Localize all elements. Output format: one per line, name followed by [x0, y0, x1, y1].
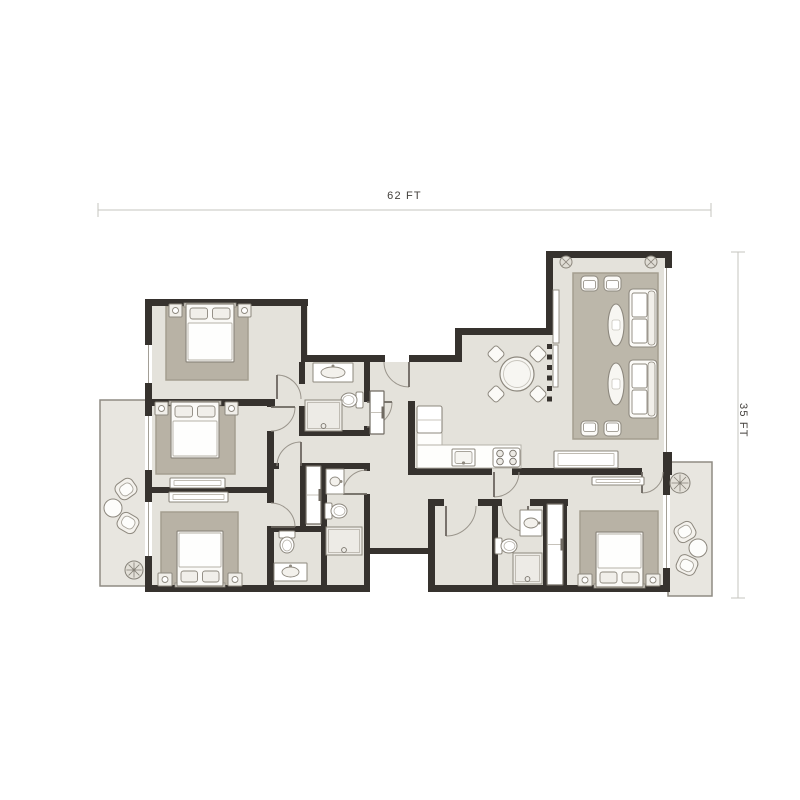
wardrobe-corridor: [370, 391, 384, 434]
tap: [340, 480, 343, 483]
sofa-cushion: [632, 364, 647, 388]
wardrobe-handle: [561, 539, 563, 551]
burner: [497, 450, 504, 457]
blanket: [598, 534, 641, 568]
shower-bath-north: [305, 400, 342, 431]
partition-dash: [547, 376, 552, 381]
bed-bedroom-4: [594, 532, 645, 588]
dresser-bedroom-3: [169, 492, 228, 502]
wall: [145, 383, 152, 407]
sink-tap: [462, 461, 465, 464]
wall: [267, 527, 274, 592]
wall: [145, 299, 152, 345]
partition-dash: [547, 397, 552, 402]
toilet-bath-south: [495, 538, 517, 554]
wall: [301, 355, 385, 362]
tap: [289, 565, 292, 568]
shower-tray: [513, 553, 542, 584]
dimension-line-top: [98, 203, 711, 217]
wall: [546, 251, 553, 335]
wall-shelf: [553, 345, 558, 387]
balcony-table: [104, 499, 122, 517]
partition-dash: [547, 365, 552, 370]
wall: [145, 556, 152, 592]
sofa-2: [629, 360, 657, 418]
wall: [409, 355, 462, 362]
dresser-top: [592, 477, 644, 485]
sofa-cushion: [632, 319, 647, 343]
toilet-bath-maid: [279, 531, 295, 553]
shower-bath-mid: [326, 527, 362, 555]
burner: [510, 458, 517, 465]
lamp: [650, 577, 656, 583]
armchair: [604, 276, 621, 291]
shower-tray: [326, 527, 362, 555]
pillow: [622, 572, 639, 583]
armchair: [581, 421, 598, 436]
lamp: [232, 577, 238, 583]
tap: [332, 365, 335, 368]
balcony-table: [689, 539, 707, 557]
sofa-cushion: [632, 293, 647, 317]
ceiling-light: [560, 256, 572, 268]
armchair-seat: [607, 281, 619, 290]
shower-tray: [305, 400, 342, 431]
partition-dash: [547, 386, 552, 391]
sideboard-living: [554, 451, 618, 468]
tv-console: [553, 290, 559, 343]
pillow: [181, 571, 198, 582]
wall: [663, 568, 670, 592]
lamp: [173, 308, 179, 314]
wall: [408, 468, 492, 475]
vanity-bath-south: [520, 510, 542, 536]
lamp: [242, 308, 248, 314]
armchair-seat: [607, 423, 619, 432]
wall: [663, 475, 670, 495]
wall: [455, 328, 462, 362]
wall: [663, 452, 672, 475]
wall: [300, 463, 306, 526]
armchair: [581, 276, 598, 291]
pillow: [213, 308, 231, 319]
pillow: [203, 571, 220, 582]
nightstand: [169, 304, 182, 317]
ceiling-light: [645, 256, 657, 268]
plant: [125, 561, 143, 579]
nightstand: [225, 402, 238, 415]
basin: [321, 367, 345, 378]
basin: [330, 477, 340, 486]
nightstand: [158, 573, 172, 586]
coffee-table-tray: [612, 320, 620, 330]
fridge-body: [417, 406, 442, 433]
wall: [299, 406, 305, 436]
basin: [524, 518, 538, 528]
coffee-table: [608, 363, 624, 405]
cooktop: [493, 448, 520, 467]
armchair-seat: [584, 281, 596, 290]
wardrobe-handle: [382, 407, 384, 419]
dresser-bedroom-2: [170, 478, 225, 488]
console-bedroom-4: [592, 477, 644, 485]
wall: [145, 406, 152, 416]
blanket: [188, 323, 232, 360]
wall: [364, 494, 370, 590]
nightstand: [646, 574, 660, 586]
dining-table: [500, 357, 534, 391]
nightstand: [228, 573, 242, 586]
wall: [478, 499, 502, 506]
nightstand: [578, 574, 592, 586]
wall: [267, 431, 274, 487]
lamp: [582, 577, 588, 583]
pillow: [198, 406, 216, 417]
partition-dash: [547, 355, 552, 360]
wall: [299, 362, 305, 384]
blanket: [179, 533, 221, 567]
kitchen-sink: [452, 449, 475, 466]
floor-plan-svg: [0, 0, 800, 800]
coffee-table: [608, 304, 624, 346]
bed-bedroom-3: [175, 531, 225, 587]
sofa-1: [629, 289, 657, 347]
shower-bath-south: [513, 553, 542, 584]
wall: [368, 548, 435, 554]
plant-center: [679, 482, 682, 485]
wall: [455, 328, 553, 335]
wall: [267, 487, 274, 503]
burner: [510, 450, 517, 457]
floor-plan-canvas: 62 FT 35 FT: [0, 0, 800, 800]
wall: [665, 251, 672, 268]
pillow: [600, 572, 617, 583]
toilet-bath-mid: [325, 503, 347, 519]
burner: [497, 458, 504, 465]
refrigerator: [417, 406, 442, 433]
floor-bath-south: [308, 554, 368, 586]
bed-bedroom-2: [169, 401, 221, 458]
pillow: [190, 308, 208, 319]
bed-bedroom-1: [184, 303, 236, 362]
lamp: [229, 406, 235, 412]
vanity-bath-north: [313, 363, 353, 382]
tap: [538, 522, 541, 525]
basin: [282, 567, 299, 577]
armchair: [604, 421, 621, 436]
sofa-back: [648, 362, 655, 416]
dining-table-top: [500, 357, 534, 391]
wall: [512, 468, 642, 475]
dresser-top: [169, 492, 228, 502]
dresser-top: [170, 478, 225, 488]
vanity-bath-mid: [326, 469, 344, 494]
pillow: [175, 406, 193, 417]
sofa-back: [648, 291, 655, 345]
dimension-label-height: 35 FT: [737, 403, 749, 438]
armchair-seat: [584, 423, 596, 432]
lamp: [159, 406, 165, 412]
wall: [408, 401, 415, 475]
wall: [301, 299, 307, 362]
wall: [428, 499, 435, 592]
dimension-label-width: 62 FT: [98, 190, 711, 202]
closet-bedroom-4: [547, 504, 563, 585]
coffee-table-tray: [612, 379, 620, 389]
vanity-bath-maid: [274, 563, 307, 581]
hob-frame: [493, 448, 520, 467]
nightstand: [155, 402, 168, 415]
toilet-bath-north: [341, 392, 363, 408]
plant-center: [133, 569, 136, 572]
nightstand: [238, 304, 251, 317]
lamp: [162, 577, 168, 583]
partition-dash: [547, 344, 552, 349]
wardrobe-handle: [319, 489, 321, 501]
wardrobe-cluster: [306, 466, 321, 524]
blanket: [173, 421, 217, 456]
plant: [670, 473, 690, 493]
wall: [145, 470, 152, 502]
wall: [364, 355, 370, 402]
wall: [267, 399, 274, 407]
sofa-cushion: [632, 390, 647, 414]
